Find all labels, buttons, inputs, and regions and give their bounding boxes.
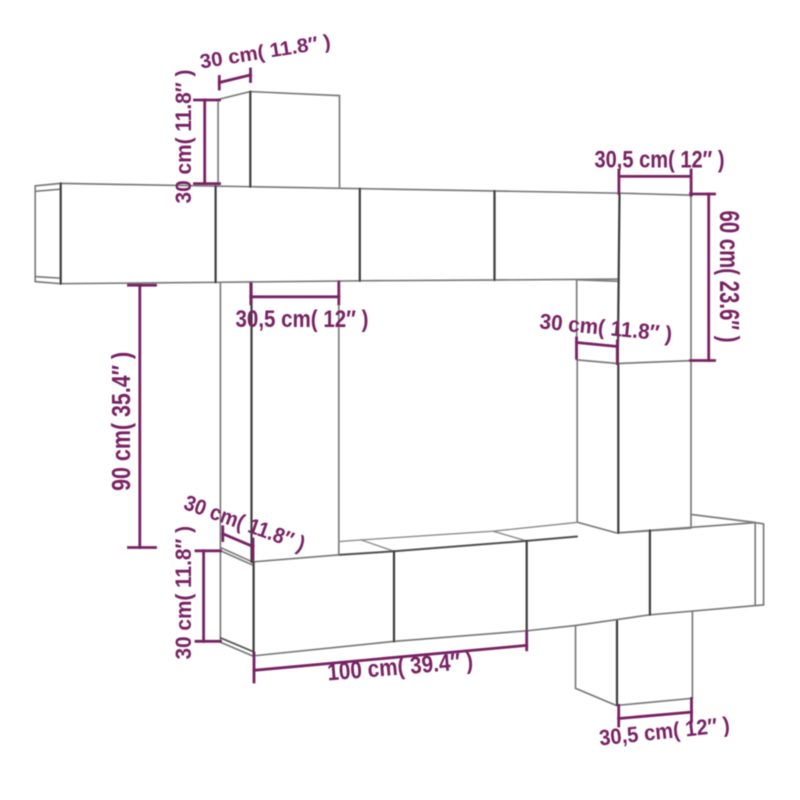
svg-text:90 cm( 35.4″ ): 90 cm( 35.4″ ) xyxy=(108,352,136,491)
svg-text:30,5 cm( 12″ ): 30,5 cm( 12″ ) xyxy=(595,147,725,174)
svg-text:30 cm( 11.8″ ): 30 cm( 11.8″ ) xyxy=(171,526,196,660)
svg-text:60 cm( 23.6″ ): 60 cm( 23.6″ ) xyxy=(714,211,745,343)
svg-text:30,5 cm( 12″ ): 30,5 cm( 12″ ) xyxy=(236,306,369,333)
svg-text:30 cm( 11.8″ ): 30 cm( 11.8″ ) xyxy=(171,70,196,204)
